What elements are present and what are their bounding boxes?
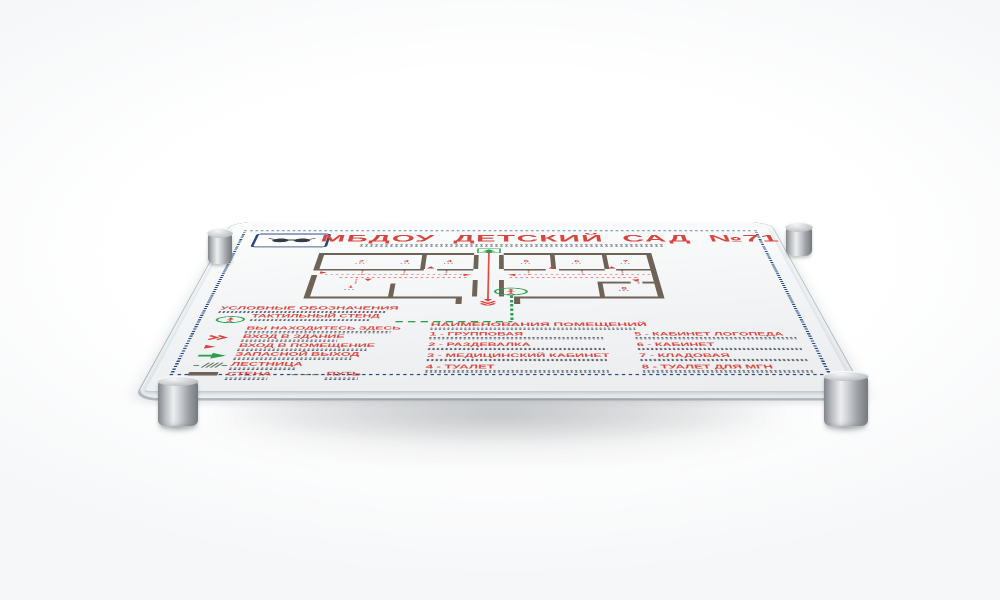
legend-title-wrap: УСЛОВНЫЕ ОБОЗНАЧЕНИЯ <box>217 306 398 314</box>
building-entrance-icon <box>203 334 243 342</box>
svg-text:1: 1 <box>347 285 354 289</box>
render-stage: МБДОУ ДЕТСКИЙ САД №71 <box>0 0 1000 600</box>
you-are-here-icon <box>211 314 252 325</box>
braille-row <box>428 337 602 339</box>
braille-row <box>217 311 386 313</box>
stairs-icon <box>189 362 231 371</box>
walls-group <box>301 253 666 304</box>
room-list-item: 4 - ТУАЛЕТ <box>424 365 619 373</box>
room-list-item: 6 - КАБИНЕТ <box>636 342 813 350</box>
legend-item-label: ВХОД В ПОМЕЩЕНИЕ <box>237 343 375 348</box>
svg-text:7: 7 <box>622 259 628 263</box>
legend-item-label: ВЫ НАХОДИТЕСЬ ЗДЕСЬ <box>245 326 401 331</box>
room-list-item: 3 - МЕДИЦИНСКИЙ КАБИНЕТ <box>426 353 618 361</box>
legend-item: ТАКТИЛЬНЫЙ СТЕНД <box>211 314 441 325</box>
braille-row <box>244 331 391 333</box>
wall-icon <box>187 372 228 376</box>
svg-text:3: 3 <box>403 259 409 263</box>
legend-item-label: ПУТЬ <box>325 372 361 377</box>
room-list-column-2: 5 - КАБИНЕТ ЛОГОПЕДА 6 - КАБИНЕТ 7 - КЛА… <box>633 332 826 376</box>
legend-item: ВХОД В ПОМЕЩЕНИЕ <box>199 343 439 351</box>
legend-item-label: ВХОД В ЗДАНИЕ <box>241 334 344 339</box>
room-list-title: НАИМЕНОВАНИЯ ПОМЕЩЕНИЙ <box>430 322 647 328</box>
braille-row <box>637 348 802 351</box>
braille-row <box>430 328 635 330</box>
standoff-top-right <box>786 227 812 256</box>
sign-plate: МБДОУ ДЕТСКИЙ САД №71 <box>144 227 856 391</box>
braille-row <box>232 358 350 361</box>
glasses-icon <box>264 237 317 243</box>
braille-row <box>635 337 797 339</box>
legend-item: ВХОД В ЗДАНИЕ <box>203 334 440 342</box>
braille-row <box>642 370 814 373</box>
sign-title: МБДОУ ДЕТСКИЙ САД №71 <box>318 233 751 244</box>
room-list-column-1: 1 - ГРУППОВАЯ 2 - РАЗДЕВАЛКА 3 - МЕДИЦИН… <box>424 332 620 376</box>
path-icon <box>291 372 326 376</box>
building-entrance-marker <box>480 301 494 305</box>
you-are-here-connector-vertical <box>509 296 512 322</box>
legend-item-label: ЗАПАСНОЙ ВЫХОД <box>233 352 359 357</box>
legend-item-label: ЛЕСТНИЦА <box>229 362 303 367</box>
braille-row <box>324 378 358 381</box>
braille-row <box>224 378 267 381</box>
marker-braille-dots <box>343 263 636 291</box>
braille-row <box>426 359 606 362</box>
legend-item-label: ТАКТИЛЬНЫЙ СТЕНД <box>250 314 380 319</box>
braille-row <box>639 359 807 362</box>
braille-row <box>228 368 297 371</box>
legend-title: УСЛОВНЫЕ ОБОЗНАЧЕНИЯ <box>219 306 399 311</box>
standoff-bottom-right <box>824 376 868 426</box>
room-list-item: 7 - КЛАДОВАЯ <box>638 353 818 361</box>
braille-row <box>249 319 371 321</box>
legend-item-label: СТЕНА <box>225 372 272 377</box>
svg-text:4: 4 <box>446 259 453 263</box>
room-list-item: 1 - ГРУППОВАЯ <box>428 332 613 340</box>
svg-text:6: 6 <box>573 259 579 263</box>
braille-row <box>236 349 366 352</box>
legend-item: ЗАПАСНОЙ ВЫХОД <box>194 352 438 361</box>
room-list-item: 8 - ТУАЛЕТ ДЛЯ МГН <box>641 365 825 373</box>
svg-text:8: 8 <box>620 286 626 290</box>
room-list-item: 2 - РАЗДЕВАЛКА <box>427 342 616 350</box>
svg-text:2: 2 <box>358 259 364 263</box>
scene-3d: МБДОУ ДЕТСКИЙ САД №71 <box>0 0 1000 600</box>
legend-item: ВЫ НАХОДИТЕСЬ ЗДЕСЬ <box>207 326 440 333</box>
standoff-bottom-left <box>158 381 198 426</box>
title-braille-row <box>359 244 664 247</box>
room-list-item: 5 - КАБИНЕТ ЛОГОПЕДА <box>633 332 807 340</box>
braille-row <box>427 348 604 351</box>
legend-item: ЛЕСТНИЦА <box>189 362 437 371</box>
svg-text:5: 5 <box>523 259 528 263</box>
room-list: НАИМЕНОВАНИЯ ПОМЕЩЕНИЙ 1 - ГРУППОВАЯ 2 -… <box>424 321 826 376</box>
standoff-top-left <box>208 233 232 264</box>
legend: УСЛОВНЫЕ ОБОЗНАЧЕНИЯ ТАКТИЛЬНЫЙ СТЕНД <box>184 305 442 380</box>
emergency-exit-icon <box>194 352 236 361</box>
emergency-exit-marker <box>477 249 499 253</box>
braille-row <box>240 340 337 342</box>
legend-item: СТЕНА ПУТЬ <box>184 372 435 381</box>
floor-plan: 2 3 4 1 5 6 7 8 <box>300 248 674 305</box>
braille-row <box>424 370 608 373</box>
room-entrance-icon <box>199 343 240 351</box>
